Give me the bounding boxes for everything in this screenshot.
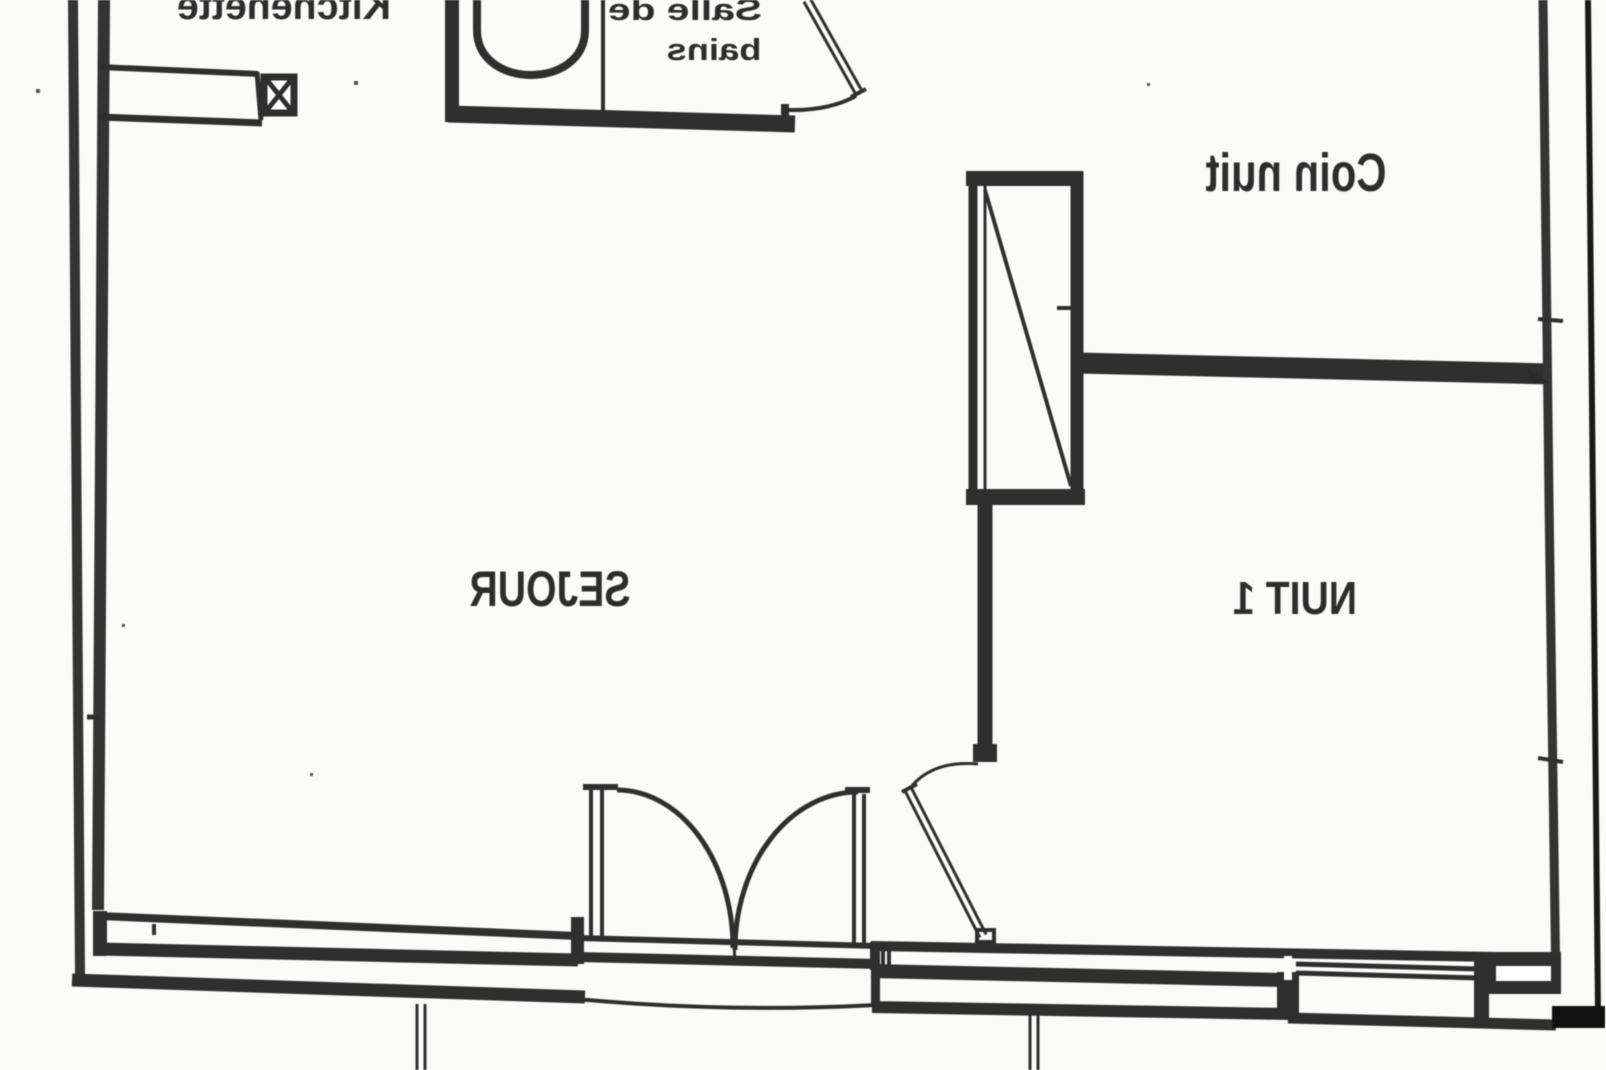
svg-text:Salle de: Salle de <box>608 0 762 27</box>
svg-text:Coin nuit: Coin nuit <box>1205 143 1386 203</box>
svg-text:Kitchenette: Kitchenette <box>177 0 391 28</box>
svg-text:SEJOUR: SEJOUR <box>470 561 631 617</box>
svg-text:NUIT 1: NUIT 1 <box>1233 572 1357 624</box>
svg-text:bains: bains <box>667 32 762 67</box>
